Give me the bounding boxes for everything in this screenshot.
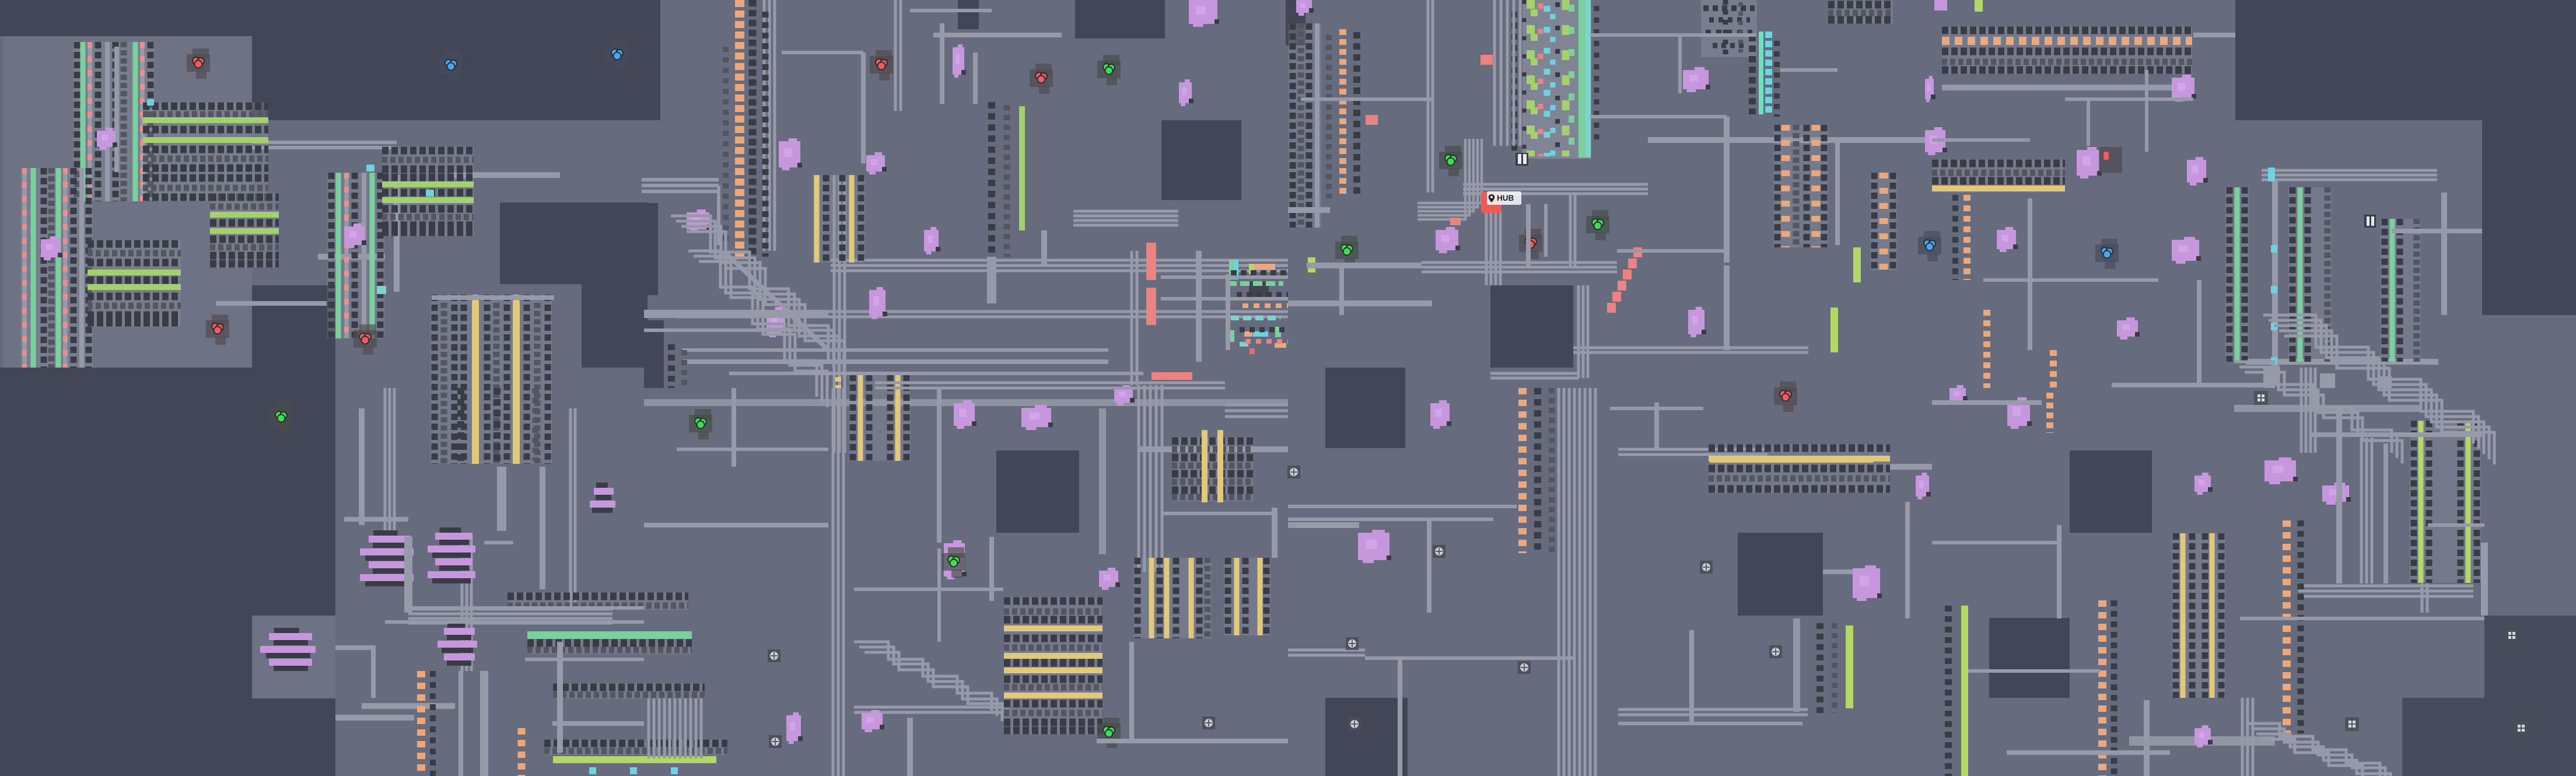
svg-text:HUB: HUB bbox=[1497, 194, 1514, 202]
